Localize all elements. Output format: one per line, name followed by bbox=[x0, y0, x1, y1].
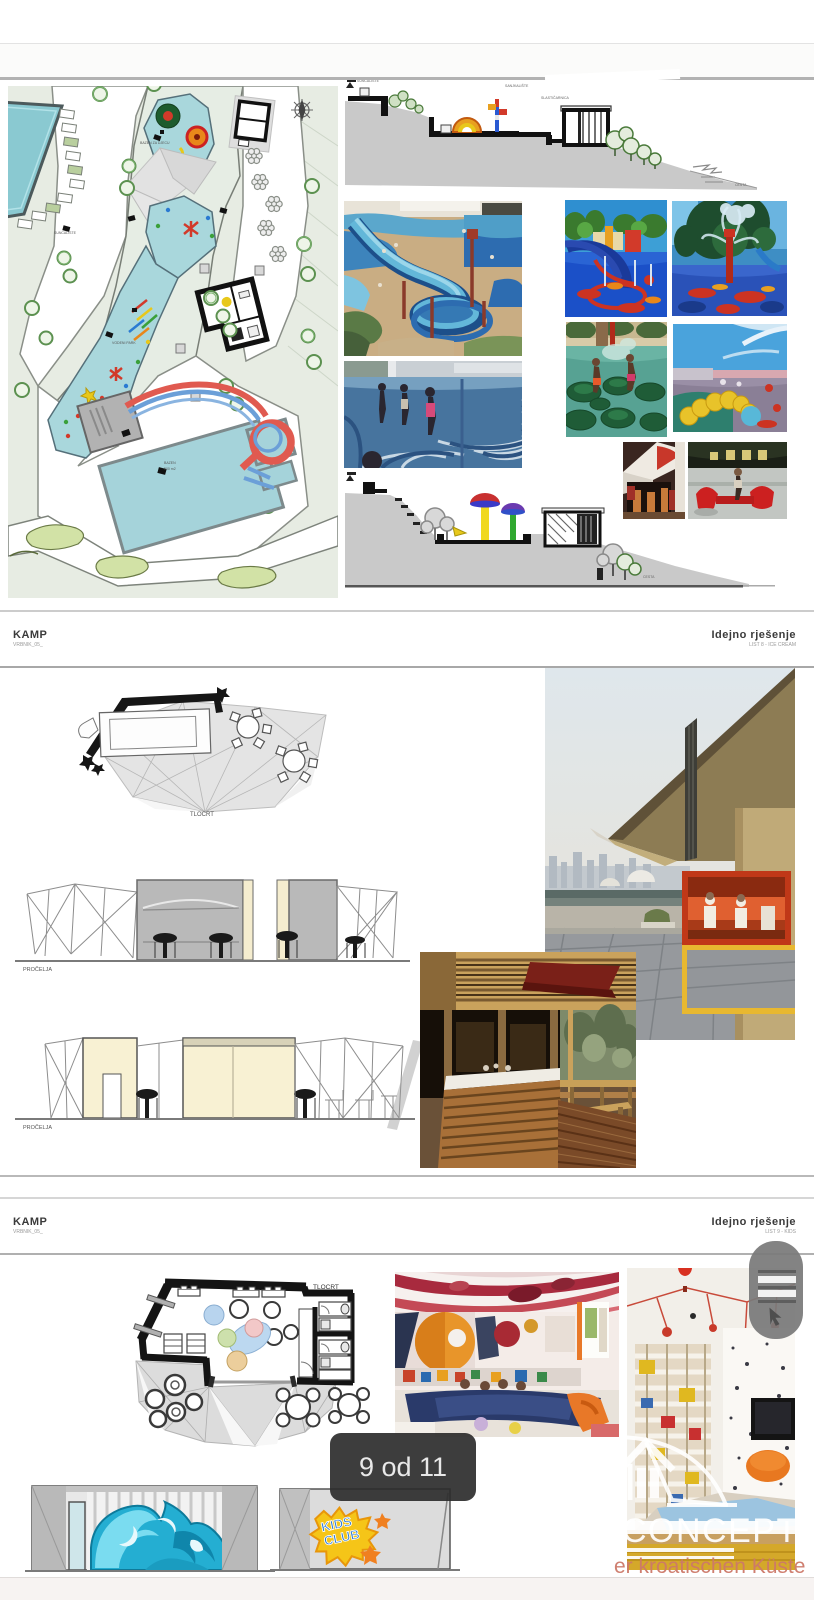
svg-text:CESTA: CESTA bbox=[643, 575, 655, 579]
svg-text:BAZEN ZA DJECU: BAZEN ZA DJECU bbox=[140, 141, 170, 145]
svg-text:er kroatischen Küste: er kroatischen Küste bbox=[614, 1555, 805, 1578]
svg-text:BAZEN: BAZEN bbox=[164, 461, 176, 465]
svg-text:VODENI PARK: VODENI PARK bbox=[112, 341, 136, 345]
svg-text:500 m2: 500 m2 bbox=[164, 467, 176, 471]
svg-text:PROČELJA: PROČELJA bbox=[23, 966, 52, 973]
svg-text:SANJKALIŠTE: SANJKALIŠTE bbox=[505, 83, 529, 88]
svg-text:PROČELJA: PROČELJA bbox=[23, 1124, 52, 1131]
svg-text:CESTA: CESTA bbox=[735, 183, 747, 187]
svg-text:SLASTIČARNICA: SLASTIČARNICA bbox=[541, 95, 569, 100]
svg-text:SUNCALISTE: SUNCALISTE bbox=[54, 231, 77, 235]
svg-text:TLOCRT: TLOCRT bbox=[313, 1284, 339, 1291]
svg-text:CONCEPT: CONCEPT bbox=[622, 1512, 799, 1550]
svg-text:TLOCRT: TLOCRT bbox=[190, 812, 214, 818]
